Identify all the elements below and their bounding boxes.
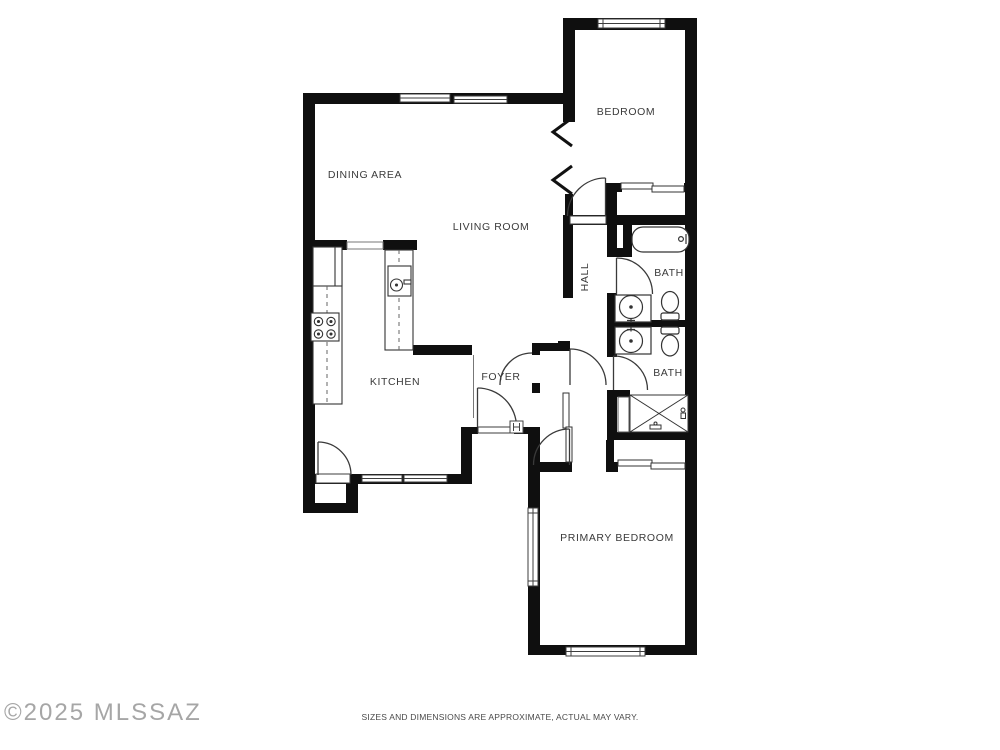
room-label-foyer: FOYER (481, 371, 520, 383)
stove-icon (311, 313, 339, 341)
room-label-living-room: LIVING ROOM (453, 221, 530, 233)
window (566, 647, 645, 656)
wall (606, 462, 618, 472)
wall (606, 183, 617, 225)
door-arc (568, 178, 606, 216)
door-arc (617, 258, 653, 294)
room-label-kitchen: KITCHEN (370, 376, 420, 388)
wall (610, 248, 623, 257)
pass-through-counter (347, 242, 383, 249)
toilet-icon (661, 292, 679, 321)
door-threshold (570, 216, 606, 224)
wall (540, 462, 572, 472)
window (404, 475, 447, 482)
wall (685, 462, 697, 472)
wall (685, 18, 697, 655)
window (528, 508, 538, 586)
sliding-door (618, 460, 652, 466)
wall-break-icon (553, 166, 572, 194)
refrigerator-icon (313, 247, 342, 286)
sliding-door (651, 463, 685, 469)
room-label-bath-1: BATH (654, 267, 684, 279)
wall-porch (346, 484, 358, 513)
window (598, 19, 665, 28)
shower-icon (630, 395, 688, 432)
wall (607, 432, 697, 440)
door-stop-icon (510, 421, 523, 433)
toilet-icon (661, 327, 679, 356)
wall-break-icon (553, 118, 572, 146)
wall-hall-left (563, 225, 573, 298)
door-arc (614, 356, 648, 390)
watermark: ©2025 MLSSAZ (4, 699, 202, 727)
room-label-bedroom: BEDROOM (597, 106, 655, 118)
wall (563, 18, 575, 122)
bathtub-icon (632, 227, 689, 252)
sliding-door (621, 183, 653, 189)
wall (684, 183, 697, 192)
wall (461, 427, 478, 434)
door-threshold (478, 427, 514, 433)
bathroom-sink-icon (615, 327, 651, 354)
room-label-dining-area: DINING AREA (328, 169, 402, 181)
sliding-door (563, 393, 569, 428)
sliding-door (652, 186, 684, 192)
disclaimer-text: SIZES AND DIMENSIONS ARE APPROXIMATE, AC… (362, 712, 639, 722)
wall (413, 345, 472, 355)
bathroom-sink-icon (615, 295, 651, 323)
window (362, 475, 402, 482)
wall-break-symbols (553, 118, 572, 194)
room-label-primary-bedroom: PRIMARY BEDROOM (560, 532, 674, 544)
linen-closet (618, 397, 629, 432)
bathroom-fixtures (615, 227, 689, 432)
door-arc (570, 349, 606, 385)
floor-plan-page: BEDROOMDINING AREALIVING ROOMHALLBATHKIT… (0, 0, 1000, 750)
door-threshold (316, 474, 350, 483)
room-label-bath-2: BATH (653, 367, 683, 379)
wall (383, 240, 417, 250)
wall (623, 225, 632, 257)
wall-closet (532, 383, 540, 393)
door-arc (318, 442, 351, 475)
room-label-hall: HALL (579, 263, 591, 292)
kitchen-sink-icon (388, 266, 411, 296)
wall-closet (532, 343, 540, 355)
wall (461, 427, 472, 474)
window (400, 94, 450, 102)
window (454, 96, 507, 103)
